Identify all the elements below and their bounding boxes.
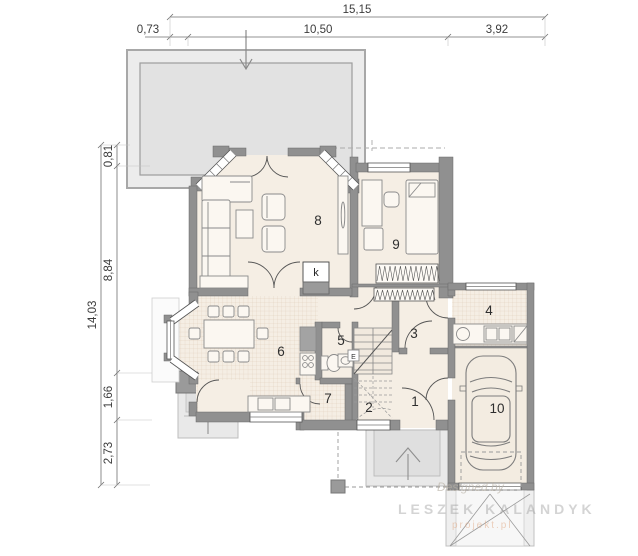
room-label-5: 5: [337, 333, 345, 348]
dim-seg-884: 8,84: [103, 258, 115, 281]
utility-counter: [453, 324, 527, 344]
floor-lobby-patch: [318, 296, 354, 326]
fridge: [300, 327, 316, 351]
room-label-1: 1: [411, 394, 419, 409]
dim-seg-273: 2,73: [103, 442, 115, 464]
room-label-10: 10: [489, 401, 504, 416]
room-label-8: 8: [314, 213, 322, 228]
dim-seg-392: 3,92: [486, 24, 508, 36]
wardrobes: [374, 264, 439, 301]
cooktop: [300, 353, 316, 375]
room-label-4: 4: [485, 303, 493, 318]
sideboard: [200, 276, 248, 288]
fireplace-label: k: [313, 267, 319, 279]
watermark: Designed by LESZEK KALANDYK projekt.pl: [398, 480, 596, 531]
desk: [362, 180, 382, 226]
dimension-left: [98, 142, 152, 488]
dim-total-height: 14,03: [87, 301, 99, 330]
bed: [406, 180, 438, 254]
cabinet: [364, 228, 383, 250]
dim-seg-166: 1,66: [103, 386, 115, 408]
dim-total-width: 15,15: [343, 4, 372, 16]
room-label-3: 3: [410, 326, 418, 341]
floor-garage: [452, 348, 528, 488]
coffee-table: [236, 210, 253, 238]
dim-seg-1050: 10,50: [304, 24, 333, 36]
watermark-website: projekt.pl: [452, 520, 513, 531]
dim-seg-073: 0,73: [137, 24, 159, 36]
room-label-9: 9: [392, 237, 400, 252]
room-label-6: 6: [277, 344, 285, 359]
room-label-7: 7: [324, 391, 332, 406]
dim-seg-081: 0,81: [103, 145, 115, 167]
driveway-apron: [446, 490, 534, 546]
window-stair-hall: [357, 420, 390, 430]
canopy-post: [331, 480, 345, 493]
window-dining: [250, 412, 302, 422]
electric-box-label: E: [351, 354, 356, 361]
kitchen-sink-counter: [248, 396, 310, 412]
watermark-byline: Designed by: [437, 480, 505, 494]
dimension-top-labels: 15,15 0,73 10,50 3,92: [137, 4, 508, 36]
desk-chair: [384, 192, 399, 207]
window-utility: [466, 283, 516, 290]
floor-kitchen-corner-patch: [198, 380, 250, 414]
floor-plan-page: 1 2 3 4 5 6 7 8 9 10 k E 15,15 0,73 10,5…: [0, 0, 638, 556]
watermark-author: LESZEK KALANDYK: [398, 501, 596, 517]
floor-plan-drawing: 1 2 3 4 5 6 7 8 9 10 k E 15,15 0,73 10,5…: [0, 0, 638, 556]
exterior-step-strip: [152, 298, 179, 382]
window-bedroom: [368, 163, 410, 172]
room-label-2: 2: [365, 400, 373, 415]
tv-unit: [338, 176, 348, 254]
